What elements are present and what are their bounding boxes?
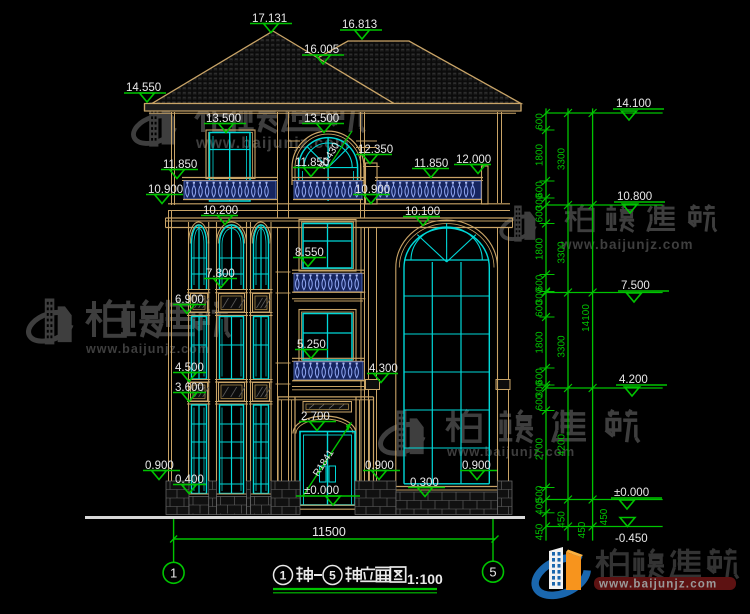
svg-text:2700: 2700 <box>535 437 546 460</box>
svg-text:1800: 1800 <box>535 143 546 166</box>
svg-text:3300: 3300 <box>557 335 568 358</box>
svg-text:7.500: 7.500 <box>621 280 650 292</box>
svg-text:10.800: 10.800 <box>617 191 652 203</box>
svg-text:4.200: 4.200 <box>619 374 648 386</box>
svg-text:400: 400 <box>535 498 546 515</box>
svg-text:450: 450 <box>535 523 546 540</box>
svg-text:www.baijunjz.com: www.baijunjz.com <box>598 579 717 591</box>
svg-text:5: 5 <box>489 564 496 579</box>
svg-text:1: 1 <box>170 566 177 581</box>
svg-text:450: 450 <box>557 511 568 528</box>
svg-text:±0.000: ±0.000 <box>614 487 649 499</box>
svg-text:14100: 14100 <box>581 304 592 332</box>
svg-text:450: 450 <box>599 508 610 525</box>
svg-text:14.100: 14.100 <box>616 98 651 110</box>
svg-text:11500: 11500 <box>312 525 346 539</box>
svg-text:3300: 3300 <box>557 147 568 170</box>
svg-text:600: 600 <box>535 393 546 410</box>
svg-text:600: 600 <box>535 300 546 317</box>
svg-text:1800: 1800 <box>535 237 546 260</box>
svg-text:4200: 4200 <box>557 433 568 456</box>
svg-text:600: 600 <box>535 113 546 130</box>
svg-text:1: 1 <box>280 569 287 583</box>
svg-text:3300: 3300 <box>557 241 568 264</box>
svg-text:-0.450: -0.450 <box>615 533 648 545</box>
svg-text:600: 600 <box>535 205 546 222</box>
svg-text:5: 5 <box>329 569 336 583</box>
svg-text:1800: 1800 <box>535 331 546 354</box>
svg-text:450: 450 <box>577 521 588 538</box>
svg-text:1:100: 1:100 <box>407 571 443 587</box>
svg-text:www.baijunjz.com: www.baijunjz.com <box>560 237 694 252</box>
